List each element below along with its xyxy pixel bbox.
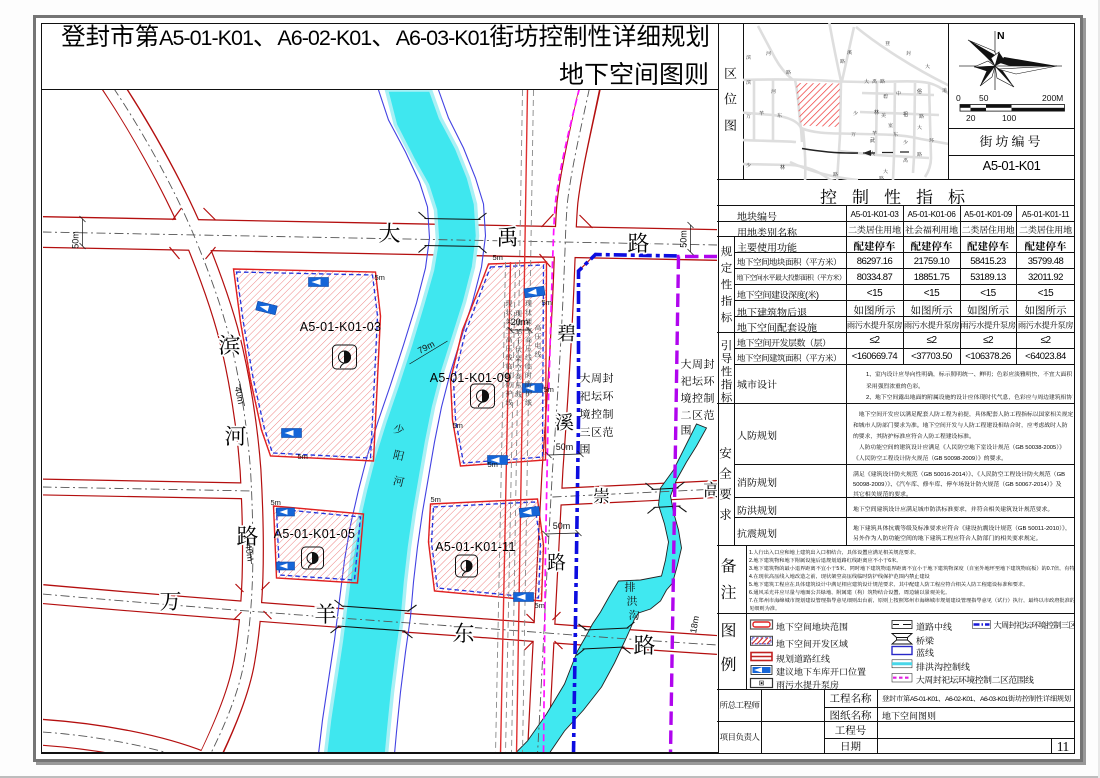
- svg-text:5m: 5m: [534, 601, 544, 610]
- svg-text:A5-01-K01-05: A5-01-K01-05: [273, 527, 354, 541]
- svg-text:5m: 5m: [487, 460, 497, 469]
- svg-text:线: 线: [505, 398, 512, 408]
- svg-text:河: 河: [766, 50, 771, 57]
- svg-text:线: 线: [515, 390, 522, 400]
- svg-text:5m: 5m: [541, 298, 551, 307]
- svg-text:中: 中: [896, 90, 901, 97]
- svg-text:三区范: 三区范: [579, 424, 614, 440]
- svg-text:祀坛环: 祀坛环: [579, 388, 614, 404]
- svg-text:禹: 禹: [903, 157, 908, 164]
- svg-text:5m: 5m: [452, 421, 462, 430]
- svg-text:滨: 滨: [746, 54, 751, 61]
- svg-text:武: 武: [870, 137, 875, 144]
- svg-text:封: 封: [906, 50, 911, 57]
- svg-text:大: 大: [870, 150, 875, 157]
- svg-text:环: 环: [929, 137, 934, 144]
- svg-text:二区范: 二区范: [680, 407, 715, 423]
- svg-text:万: 万: [746, 113, 751, 120]
- svg-text:18m: 18m: [688, 615, 701, 634]
- svg-text:大: 大: [917, 124, 922, 131]
- svg-text:路: 路: [879, 175, 884, 180]
- svg-text:50m: 50m: [70, 231, 80, 249]
- svg-text:东: 东: [893, 131, 898, 138]
- svg-text:境控制: 境控制: [680, 390, 715, 406]
- svg-text:滨: 滨: [218, 329, 240, 360]
- svg-text:道: 道: [942, 87, 947, 94]
- svg-text:东: 东: [452, 617, 474, 648]
- svg-text:20m: 20m: [510, 317, 528, 327]
- svg-text:大: 大: [925, 63, 930, 70]
- svg-text:5m: 5m: [374, 273, 384, 282]
- svg-text:路: 路: [546, 548, 565, 575]
- svg-text:林: 林: [874, 109, 879, 116]
- svg-text:崇: 崇: [593, 482, 610, 507]
- svg-text:少: 少: [746, 162, 751, 169]
- svg-text:路: 路: [833, 171, 838, 178]
- svg-text:室: 室: [888, 122, 893, 129]
- svg-text:禹: 禹: [496, 221, 518, 252]
- svg-text:路: 路: [917, 151, 922, 158]
- svg-text:溪: 溪: [847, 49, 852, 56]
- svg-text:路: 路: [633, 629, 655, 660]
- svg-text:5m: 5m: [492, 253, 502, 262]
- svg-text:100: 100: [1002, 113, 1016, 123]
- svg-text:大周封: 大周封: [579, 370, 614, 386]
- svg-text:5m: 5m: [543, 385, 553, 394]
- svg-text:少: 少: [903, 139, 908, 146]
- svg-text:路: 路: [627, 227, 649, 258]
- svg-text:路: 路: [840, 58, 845, 65]
- svg-text:林: 林: [780, 164, 785, 171]
- svg-text:羊: 羊: [872, 130, 877, 137]
- svg-text:万: 万: [851, 131, 856, 138]
- svg-text:围: 围: [680, 422, 692, 438]
- svg-text:大: 大: [864, 78, 869, 85]
- svg-text:路: 路: [786, 69, 791, 76]
- svg-text:万: 万: [159, 585, 181, 616]
- svg-text:禹: 禹: [872, 78, 877, 85]
- svg-text:大: 大: [883, 168, 888, 175]
- svg-text:溪: 溪: [554, 408, 573, 435]
- svg-text:路: 路: [919, 113, 924, 120]
- svg-text:5m: 5m: [270, 498, 280, 507]
- svg-text:大周封: 大周封: [680, 356, 715, 372]
- svg-text:羊: 羊: [314, 598, 336, 629]
- svg-text:俗: 俗: [917, 88, 922, 95]
- svg-text:碧: 碧: [556, 319, 575, 346]
- svg-text:50m: 50m: [678, 230, 688, 248]
- svg-text:河: 河: [224, 420, 246, 451]
- svg-text:高: 高: [703, 476, 718, 501]
- svg-text:A5-01-K01-11: A5-01-K01-11: [435, 540, 516, 554]
- svg-text:沟: 沟: [628, 607, 639, 623]
- svg-text:美: 美: [881, 112, 886, 119]
- svg-text:5m: 5m: [297, 452, 307, 461]
- svg-text:祖: 祖: [903, 111, 908, 118]
- svg-text:线: 线: [534, 350, 541, 360]
- svg-text:A5-01-K01-09: A5-01-K01-09: [429, 371, 510, 385]
- svg-text:50m: 50m: [552, 521, 570, 531]
- svg-text:A5-01-K01-03: A5-01-K01-03: [299, 320, 380, 334]
- svg-text:大: 大: [378, 217, 400, 248]
- svg-text:5m: 5m: [430, 495, 440, 504]
- svg-text:羊: 羊: [759, 110, 764, 117]
- svg-text:少: 少: [853, 110, 858, 117]
- svg-text:滨: 滨: [746, 79, 751, 86]
- svg-text:路: 路: [880, 78, 885, 85]
- svg-text:200M: 200M: [1042, 93, 1063, 103]
- svg-text:20: 20: [966, 113, 976, 123]
- svg-text:祀坛环: 祀坛环: [680, 373, 715, 389]
- svg-text:50: 50: [979, 93, 989, 103]
- svg-text:境控制: 境控制: [579, 406, 614, 422]
- svg-text:50m: 50m: [555, 442, 573, 452]
- svg-text:碧: 碧: [883, 93, 888, 100]
- svg-text:线: 线: [525, 398, 532, 408]
- svg-text:0: 0: [956, 93, 961, 103]
- svg-text:登: 登: [885, 40, 890, 47]
- svg-text:东: 东: [777, 112, 782, 119]
- svg-text:河: 河: [771, 88, 776, 95]
- svg-text:N: N: [997, 30, 1005, 42]
